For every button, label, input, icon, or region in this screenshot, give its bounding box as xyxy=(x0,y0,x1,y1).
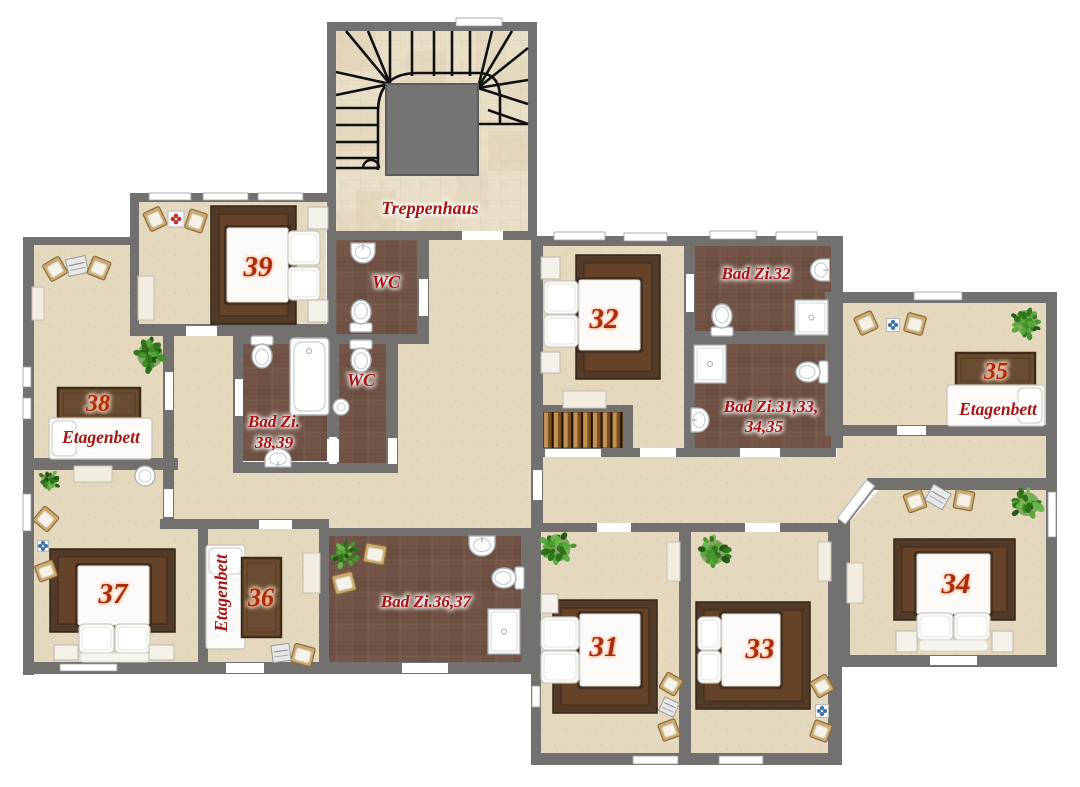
svg-text:37: 37 xyxy=(98,578,130,610)
svg-text:31: 31 xyxy=(589,631,619,663)
svg-text:38: 38 xyxy=(85,391,110,417)
svg-text:39: 39 xyxy=(243,251,273,283)
svg-text:38,39: 38,39 xyxy=(254,433,294,452)
svg-text:WC: WC xyxy=(372,272,401,292)
svg-text:35: 35 xyxy=(983,359,1008,385)
svg-text:Bad Zi.31,33,: Bad Zi.31,33, xyxy=(723,397,818,416)
svg-text:Etagenbett: Etagenbett xyxy=(61,427,141,447)
svg-text:Bad Zi.: Bad Zi. xyxy=(247,412,300,431)
svg-text:36: 36 xyxy=(247,583,274,612)
svg-text:Bad Zi.36,37: Bad Zi.36,37 xyxy=(380,592,473,611)
svg-text:Treppenhaus: Treppenhaus xyxy=(381,198,478,218)
svg-text:34,35: 34,35 xyxy=(744,417,784,436)
svg-text:32: 32 xyxy=(589,303,619,335)
svg-text:WC: WC xyxy=(347,370,376,390)
svg-text:33: 33 xyxy=(745,633,775,665)
svg-text:34: 34 xyxy=(941,568,971,600)
svg-text:Etagenbett: Etagenbett xyxy=(958,399,1038,419)
svg-text:Etagenbett: Etagenbett xyxy=(211,553,231,633)
svg-text:Bad Zi.32: Bad Zi.32 xyxy=(721,264,791,283)
